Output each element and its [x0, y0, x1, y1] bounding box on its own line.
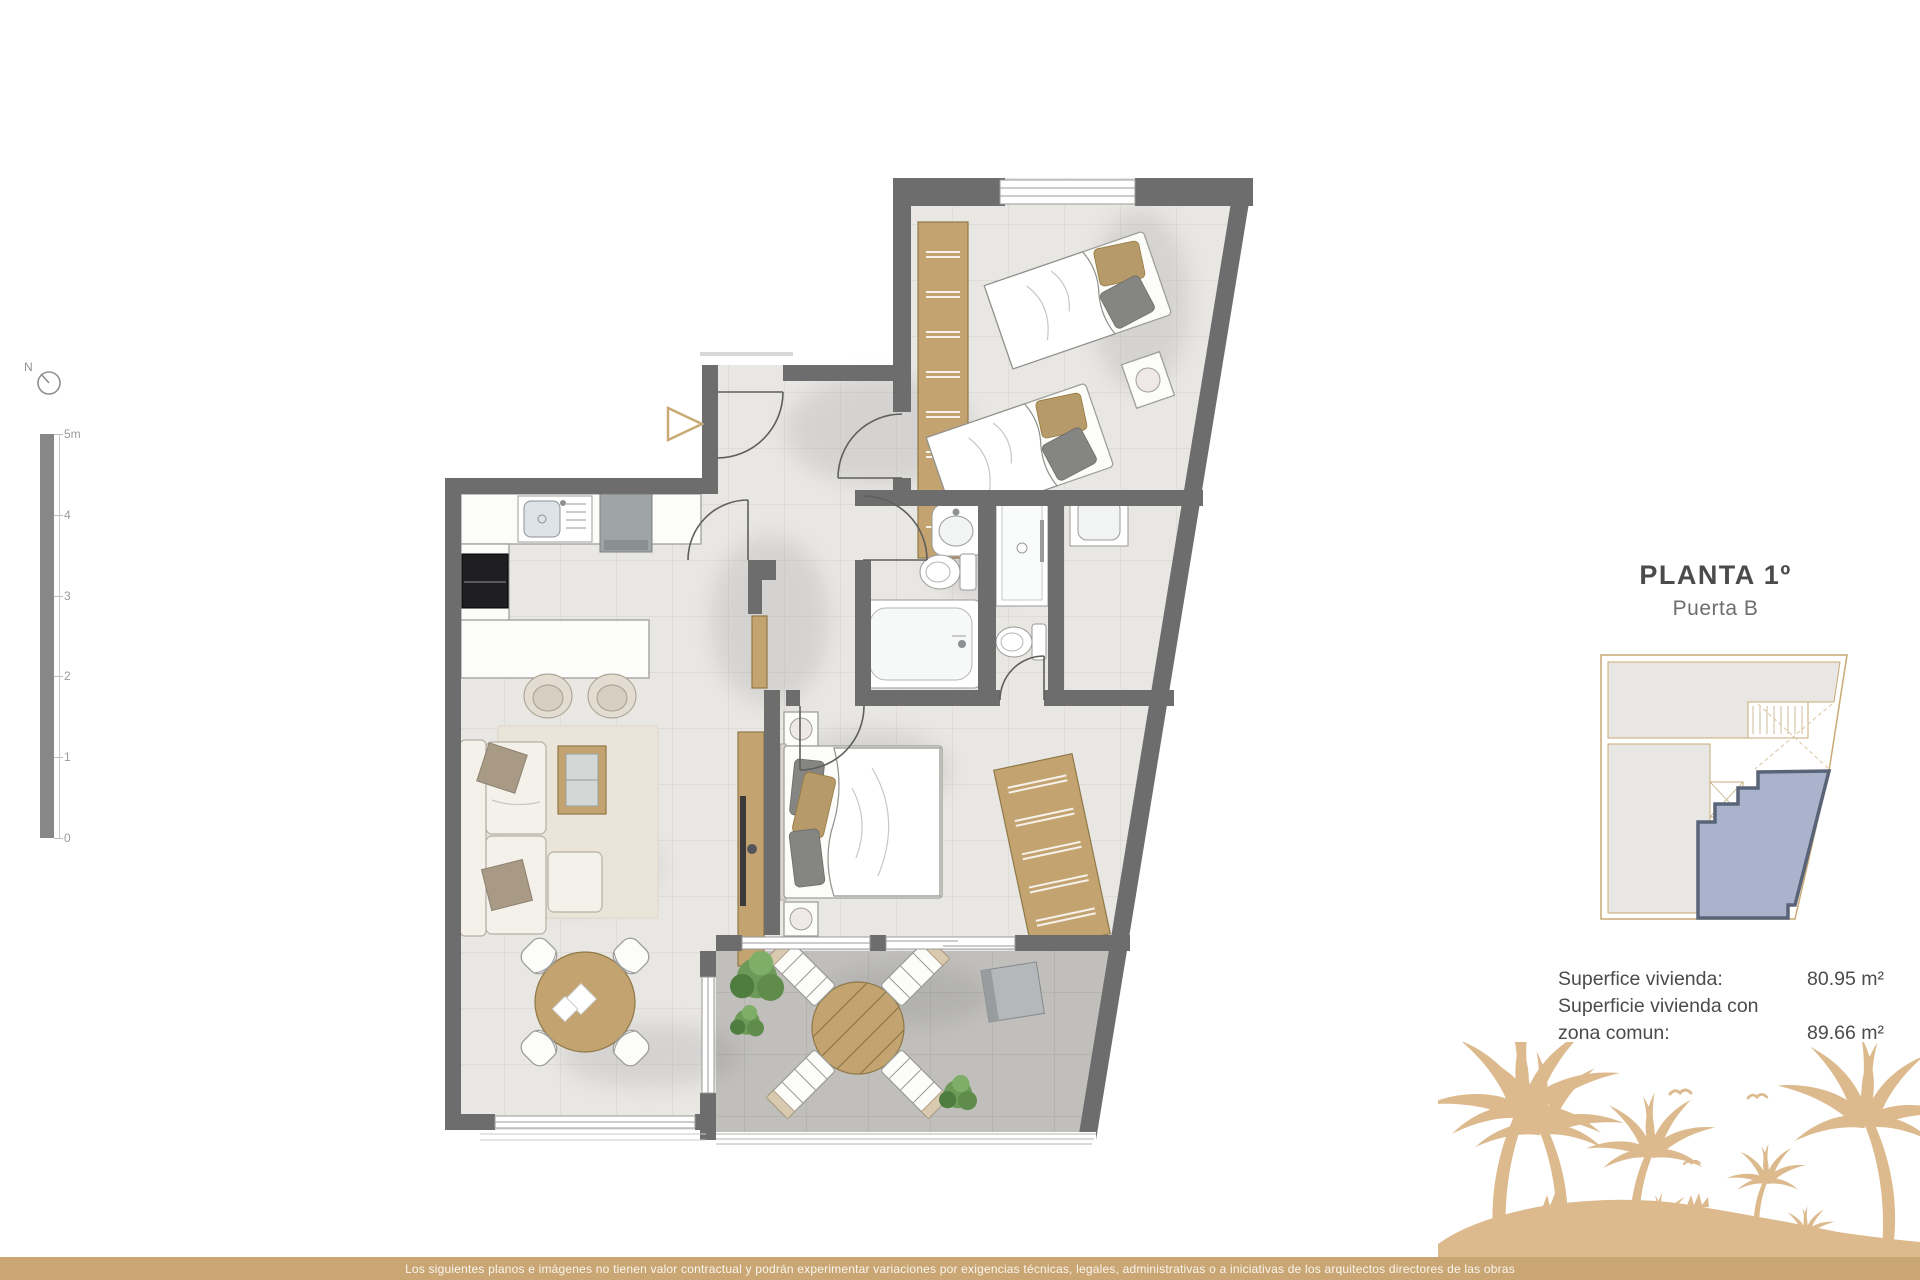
window-master — [742, 937, 870, 949]
kitchen-island — [461, 620, 649, 678]
bathtub — [862, 600, 980, 688]
surface-info: Superfice vivienda: 80.95 m² Superficie … — [1558, 966, 1884, 1047]
surface-label: Superfice vivienda: — [1558, 966, 1723, 993]
compass-north-label: N — [24, 360, 33, 374]
window-living-side — [702, 977, 714, 1093]
info-panel: PLANTA 1º Puerta B — [1558, 560, 1873, 621]
compass-icon — [34, 368, 66, 400]
scale-bar-body — [40, 434, 54, 838]
entry-marker-triangle — [668, 408, 702, 440]
shower — [996, 494, 1048, 606]
palm-trees-decoration — [1438, 1042, 1920, 1262]
toilet — [996, 624, 1046, 660]
page-title: PLANTA 1º — [1558, 560, 1873, 591]
stool — [524, 674, 572, 718]
compass: N — [22, 360, 82, 410]
scale-label-5m: 5m — [64, 427, 94, 441]
tv-unit — [738, 732, 764, 966]
washbasin — [932, 504, 984, 556]
disclaimer-text: Los siguientes planos e imágenes no tien… — [405, 1262, 1515, 1276]
stool — [588, 674, 636, 718]
floor-plan — [430, 168, 1270, 1160]
toilet — [920, 554, 976, 590]
ac-unit — [981, 962, 1044, 1022]
location-mini-plan — [1598, 652, 1851, 924]
footer-disclaimer-bar: Los siguientes planos e imágenes no tien… — [0, 1257, 1920, 1280]
kitchen-sink — [518, 496, 592, 542]
sliding-door-terrace — [886, 937, 1015, 949]
surface-value: 80.95 m² — [1807, 966, 1884, 993]
surface-row: Superfice vivienda: 80.95 m² — [1558, 966, 1884, 993]
hall-console — [752, 616, 767, 688]
grass-tuft — [1686, 1193, 1709, 1208]
scale-label-2: 2 — [64, 669, 94, 683]
palm-tree — [1773, 1042, 1920, 1242]
stair-core — [1748, 702, 1808, 738]
scale-bar: 5m 4 3 2 1 0 — [38, 430, 98, 842]
scale-bar-axis — [59, 434, 60, 838]
scale-label-1: 1 — [64, 750, 94, 764]
window-bedroom2 — [1000, 180, 1135, 204]
window-living — [480, 1116, 706, 1140]
neighbor-unit-left — [1608, 744, 1710, 913]
terrace-railing — [716, 1132, 1096, 1146]
bird-icon — [1670, 1090, 1691, 1094]
scale-label-4: 4 — [64, 508, 94, 522]
bird-icon — [1748, 1094, 1767, 1098]
scale-label-0: 0 — [64, 831, 94, 845]
scale-label-3: 3 — [64, 589, 94, 603]
surface-row: Superficie vivienda con — [1558, 993, 1884, 1020]
double-bed — [780, 744, 942, 900]
surface-label: Superficie vivienda con — [1558, 993, 1759, 1020]
coffee-table — [558, 746, 606, 814]
page-subtitle: Puerta B — [1558, 597, 1873, 621]
page: N 5m 4 3 2 1 0 — [0, 0, 1920, 1280]
